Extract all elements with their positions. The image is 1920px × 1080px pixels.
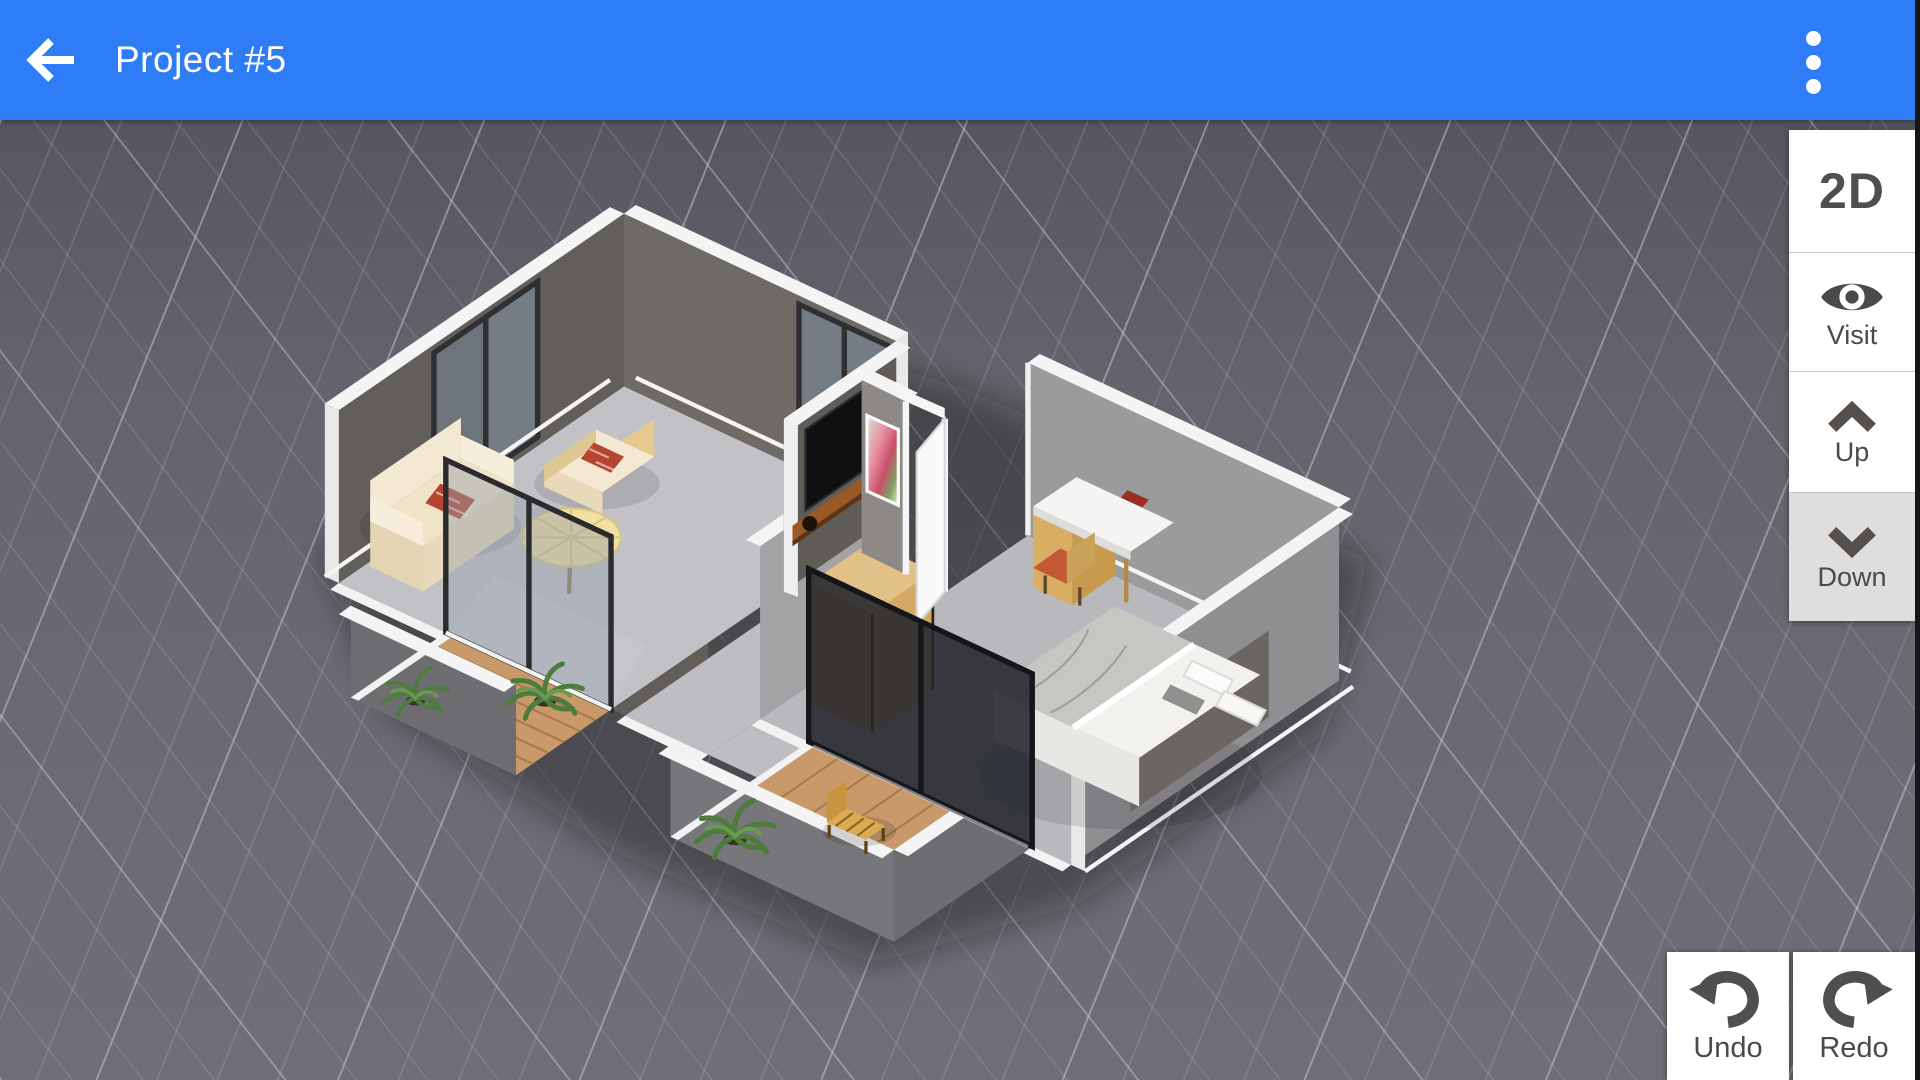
visit-button[interactable]: Visit [1789,252,1915,371]
undo-label: Undo [1693,1034,1762,1063]
back-button[interactable] [20,28,84,92]
page-title: Project #5 [115,0,287,120]
down-label: Down [1817,564,1886,591]
redo-button[interactable]: Redo [1793,952,1915,1080]
wall-picture [867,416,898,506]
app-header: Project #5 [0,0,1920,120]
open-door [917,419,945,625]
floor-plan-viewport[interactable] [0,120,1920,1080]
app-window: Project #5 2D Visit Up [0,0,1920,1080]
redo-label: Redo [1819,1034,1888,1063]
kebab-menu-icon [1806,31,1821,46]
overflow-menu-button[interactable] [1796,26,1830,98]
view-toolbar: 2D Visit Up Down [1789,130,1915,621]
undo-button[interactable]: Undo [1667,952,1789,1080]
undo-arrow-icon [1685,966,1771,1028]
kebab-menu-icon [1806,55,1821,70]
screen-edge-strip [1915,0,1920,1080]
redo-arrow-icon [1811,966,1897,1028]
up-label: Up [1835,439,1870,466]
down-button[interactable]: Down [1789,492,1915,621]
chevron-up-icon [1819,399,1885,435]
floor-plan-scene [0,120,1920,1080]
2d-mode-label: 2D [1819,162,1885,220]
chevron-down-icon [1819,524,1885,560]
arrow-left-icon [20,28,84,92]
visit-label: Visit [1827,322,1878,349]
up-button[interactable]: Up [1789,371,1915,492]
kebab-menu-icon [1806,79,1821,94]
eye-icon [1819,276,1885,318]
2d-mode-button[interactable]: 2D [1789,130,1915,252]
